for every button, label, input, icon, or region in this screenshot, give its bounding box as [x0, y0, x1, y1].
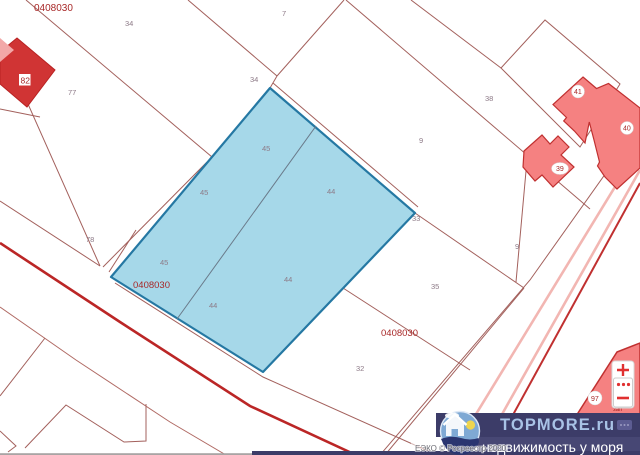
svg-text:0408030: 0408030 — [34, 3, 73, 14]
svg-text:44: 44 — [327, 187, 335, 196]
svg-text:45: 45 — [160, 258, 168, 267]
svg-text:9: 9 — [515, 242, 519, 251]
svg-text:44: 44 — [209, 301, 217, 310]
svg-text:44: 44 — [284, 275, 292, 284]
svg-text:45: 45 — [200, 188, 208, 197]
svg-text:34: 34 — [250, 75, 258, 84]
svg-text:TOPMORE.ru: TOPMORE.ru — [500, 416, 615, 434]
svg-text:0408030: 0408030 — [133, 280, 170, 291]
svg-text:77: 77 — [68, 88, 76, 97]
svg-text:9: 9 — [419, 136, 423, 145]
svg-text:82: 82 — [21, 76, 31, 86]
svg-text:33: 33 — [412, 214, 420, 223]
svg-text:7: 7 — [282, 9, 286, 18]
svg-text:35: 35 — [431, 282, 439, 291]
svg-text:41: 41 — [574, 89, 582, 96]
svg-text:97: 97 — [591, 396, 599, 403]
svg-text:32: 32 — [356, 364, 364, 373]
svg-text:45: 45 — [262, 144, 270, 153]
svg-text:40: 40 — [623, 126, 631, 133]
svg-text:78: 78 — [86, 235, 94, 244]
svg-text:39: 39 — [556, 166, 564, 173]
svg-text:0408030: 0408030 — [381, 328, 418, 339]
svg-text:34: 34 — [125, 19, 133, 28]
svg-text:ЕЭКО © Росреестр 2020: ЕЭКО © Росреестр 2020 — [415, 444, 507, 453]
svg-text:38: 38 — [485, 94, 493, 103]
